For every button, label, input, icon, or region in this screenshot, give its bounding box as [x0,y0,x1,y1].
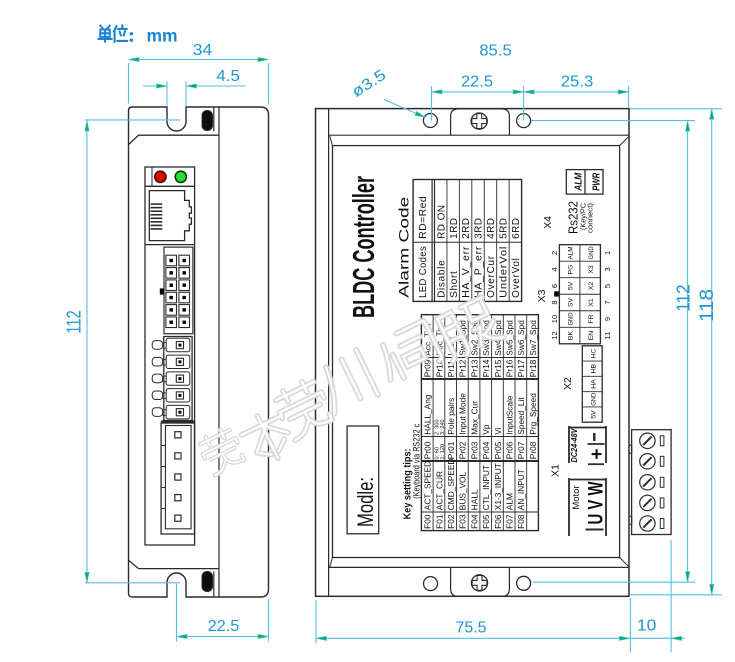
svg-text:112: 112 [64,310,86,334]
svg-text:Modle:: Modle: [353,477,378,527]
svg-text:EN: EN [588,331,595,341]
svg-text:Disable: Disable [436,260,447,298]
svg-text:118: 118 [697,289,718,322]
svg-text:X1-3_INPUT: X1-3_INPUT [493,463,503,510]
svg-text:DC24-48V: DC24-48V [569,427,579,462]
svg-text:Pr12: Pr12 [458,359,468,377]
svg-text:BUS_VOL: BUS_VOL [458,472,468,511]
svg-text:HC: HC [590,348,597,358]
svg-text:(Keyboard via RS232 c: (Keyboard via RS232 c [412,423,422,498]
svg-text:X4: X4 [542,216,554,229]
svg-text:Speed_Lit: Speed_Lit [516,397,526,435]
svg-text:5V: 5V [590,410,597,419]
svg-text:F05: F05 [481,514,491,529]
svg-text:Input Mode: Input Mode [458,393,468,435]
svg-text:F04: F04 [469,514,479,529]
svg-text:Pr07: Pr07 [516,441,526,459]
svg-text:SV: SV [567,298,574,308]
svg-text:HA_P_err: HA_P_err [474,246,485,298]
svg-text:GND: GND [590,393,597,406]
svg-text:F00: F00 [423,514,433,529]
svg-text:25.3: 25.3 [561,73,594,90]
svg-text:22.5: 22.5 [208,618,240,635]
svg-text:75.5: 75.5 [456,620,487,637]
svg-text:5: 5 [603,284,612,288]
svg-text:3: 240: 3: 240 [440,419,446,435]
svg-text:RD=Red: RD=Red [417,196,429,239]
svg-text:10: 10 [550,315,559,323]
svg-text:HA: HA [590,379,597,389]
svg-text:6RD: 6RD [511,218,522,239]
svg-text:Max_Cur: Max_Cur [469,401,479,435]
svg-text:Pr09: Pr09 [423,359,433,377]
svg-text:1: 120: 1: 120 [440,444,446,460]
svg-text:4: 4 [550,267,559,271]
svg-text:Vi: Vi [493,427,503,434]
svg-text:34: 34 [193,42,213,59]
svg-text:Pr02: Pr02 [458,441,468,459]
svg-text:85.5: 85.5 [479,43,512,60]
svg-text:Pr16: Pr16 [505,359,515,377]
svg-text:GND: GND [588,246,595,259]
svg-text:HALL_Ang: HALL_Ang [423,394,433,435]
svg-text:ALM: ALM [567,246,574,259]
svg-text:FR: FR [588,314,595,323]
svg-text:AN_INPUT: AN_INPUT [516,469,526,510]
svg-text:10: 10 [637,618,657,635]
svg-text:Pr01: Pr01 [446,441,456,459]
svg-text:X3: X3 [588,265,595,274]
svg-text:1: 1 [603,251,612,255]
svg-text:Pr18: Pr18 [528,359,538,377]
svg-text:7: 7 [603,300,612,304]
svg-text:Pole pairs: Pole pairs [446,398,456,435]
svg-text:F02: F02 [446,514,456,529]
svg-text:8: 8 [550,300,559,304]
svg-text:Prg_Speed: Prg_Speed [528,393,538,435]
svg-text:Pr17: Pr17 [516,359,526,377]
svg-text:Motor: Motor [571,485,582,509]
svg-text:9: 9 [603,317,612,321]
svg-text:HA_V_err: HA_V_err [461,246,472,298]
svg-text:OverCur: OverCur [486,255,497,298]
svg-text:OverVol: OverVol [511,257,522,297]
svg-text:112: 112 [674,284,694,312]
svg-text:U V W: U V W [585,481,608,524]
svg-text:Pr06: Pr06 [505,441,515,459]
svg-text:3RD: 3RD [474,218,485,239]
svg-text:Pr08: Pr08 [528,441,538,459]
svg-text:CMD_SPEED: CMD_SPEED [446,459,456,511]
svg-text:HB: HB [590,364,597,374]
svg-text:ALM: ALM [572,173,584,192]
svg-text:PWR: PWR [591,172,603,190]
svg-text:CTL_INPUT: CTL_INPUT [481,465,491,510]
svg-text:Short: Short [449,270,460,297]
svg-text:ACT_SPEED: ACT_SPEED [423,461,433,510]
svg-text:+: + [587,448,608,459]
svg-text:mm: mm [147,25,178,45]
svg-text:2: 2 [550,251,559,255]
svg-text:F08: F08 [516,514,526,529]
svg-text:5V: 5V [567,281,574,290]
svg-text:BLDC Controller: BLDC Controller [346,176,381,318]
svg-text:HALL: HALL [469,489,479,510]
svg-text:RD ON: RD ON [436,205,447,239]
svg-text:LED Codes: LED Codes [417,246,429,298]
svg-text:Pr03: Pr03 [469,441,479,459]
svg-text:4.5: 4.5 [216,68,240,85]
svg-text:UnderVol: UnderVol [499,246,510,298]
svg-text:12: 12 [550,331,559,339]
svg-text:2RD: 2RD [461,218,472,239]
svg-text:Pr05: Pr05 [493,441,503,459]
svg-text:ACT_CUR: ACT_CUR [434,471,444,510]
svg-text:Pr00: Pr00 [423,441,433,459]
svg-text:1RD: 1RD [449,218,460,239]
svg-text:X3: X3 [536,289,548,302]
svg-text:connect): connect) [585,202,594,233]
svg-text:Sw6_Spd: Sw6_Spd [516,320,526,356]
svg-text:X1: X1 [588,298,595,307]
svg-text:F03: F03 [458,514,468,529]
svg-text:Pr04: Pr04 [481,441,491,459]
svg-text:X1: X1 [550,464,562,477]
svg-text:6: 6 [550,284,559,288]
svg-text:Vp: Vp [481,424,491,435]
svg-text:F06: F06 [493,514,503,529]
svg-text:4RD: 4RD [486,218,497,239]
svg-text:Alarm Code: Alarm Code [395,196,411,297]
svg-text:F07: F07 [505,514,515,529]
svg-text:3: 3 [603,267,612,271]
svg-text:5RD: 5RD [499,218,510,239]
svg-text:ALM: ALM [505,493,515,510]
svg-text:X2: X2 [562,377,574,390]
svg-text:Pr13: Pr13 [469,359,479,377]
svg-text:X2: X2 [588,282,595,291]
svg-text:InputScale: InputScale [505,395,515,435]
svg-text:PG: PG [567,265,574,275]
svg-text:11: 11 [603,332,612,340]
svg-text:Sw7_Spd: Sw7_Spd [528,320,538,356]
svg-text:Pr14: Pr14 [481,359,491,377]
svg-text:Pr15: Pr15 [493,359,503,377]
svg-text:22.5: 22.5 [461,73,493,90]
svg-text:GND: GND [567,312,574,325]
svg-text:F01: F01 [434,514,444,529]
svg-text:BK: BK [567,331,574,341]
